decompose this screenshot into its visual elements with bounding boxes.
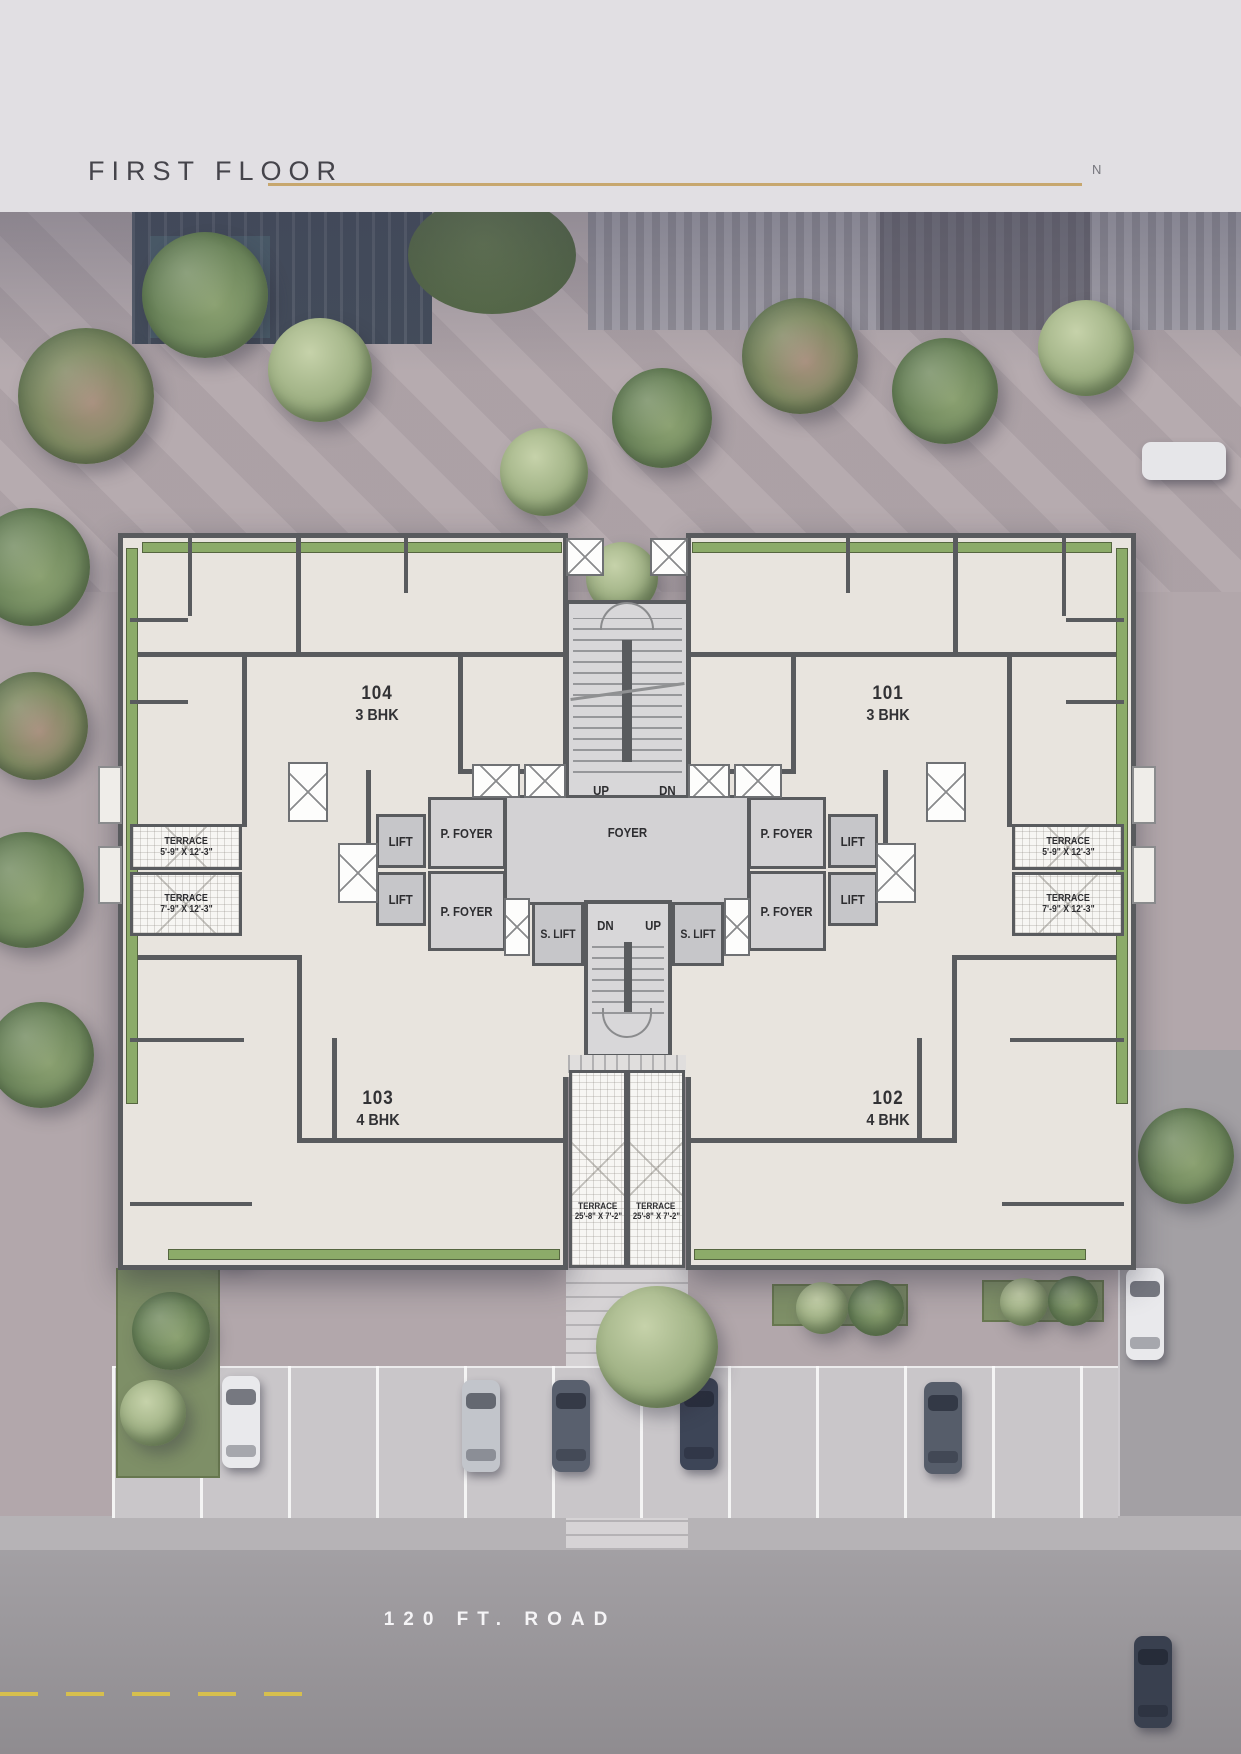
wall-segment	[952, 955, 1116, 960]
shaft-x-box	[504, 898, 530, 956]
wall-segment	[1010, 1038, 1124, 1042]
p-foyer-text: P. FOYER	[761, 826, 813, 841]
car	[1126, 1268, 1164, 1360]
tree	[0, 672, 88, 780]
green-edge-bottom-left	[168, 1249, 560, 1260]
green-edge-top-left	[142, 542, 562, 553]
wall-segment	[188, 538, 192, 616]
private-foyer-box: P. FOYER	[748, 797, 826, 869]
terrace-dims: 25'-8" X 7'-2"	[632, 1211, 679, 1221]
p-foyer-text: P. FOYER	[441, 826, 493, 841]
wall-segment	[130, 1202, 252, 1206]
road-name-text: 120 FT. ROAD	[384, 1609, 617, 1631]
wall-segment	[404, 538, 408, 593]
tree	[742, 298, 858, 414]
service-lift-box: S. LIFT	[672, 902, 724, 966]
wall-segment	[1002, 1202, 1124, 1206]
tree	[268, 318, 372, 422]
lift-box: LIFT	[828, 872, 878, 926]
balcony-slab	[98, 846, 122, 904]
shaft-x-box	[876, 843, 916, 903]
service-lift-box: S. LIFT	[532, 902, 584, 966]
terrace-name: TERRACE	[1046, 836, 1090, 847]
unit-number: 104	[323, 683, 431, 705]
wall-segment	[458, 657, 463, 769]
terrace-name: TERRACE	[578, 1201, 617, 1211]
shaft-x-box	[566, 538, 604, 576]
private-foyer-box: P. FOYER	[748, 871, 826, 951]
terrace-dims: 5'-9" X 12'-3"	[160, 847, 212, 858]
balcony-slab	[98, 766, 122, 824]
wall-segment	[130, 700, 188, 704]
shaft-x-box	[472, 764, 520, 798]
lift-box: LIFT	[376, 814, 426, 868]
wall-segment	[686, 1138, 954, 1143]
car	[1142, 442, 1226, 480]
balcony-slab	[1132, 766, 1156, 824]
title-rule	[268, 183, 1082, 186]
car	[1134, 1636, 1172, 1728]
lift-text: LIFT	[389, 892, 413, 907]
tree	[892, 338, 998, 444]
s-lift-text: S. LIFT	[540, 927, 575, 941]
wall-segment	[130, 618, 188, 622]
brochure-page: 120 FT. ROAD	[0, 0, 1241, 1754]
tree	[18, 328, 154, 464]
unit-type: 3 BHK	[323, 707, 431, 725]
terrace-dims: 7'-9" X 12'-3"	[160, 904, 212, 915]
shaft-x-box	[288, 762, 328, 822]
shrub	[120, 1380, 186, 1446]
lift-box: LIFT	[828, 814, 878, 868]
car	[222, 1376, 260, 1468]
shaft-x-box	[338, 843, 378, 903]
wall-segment	[791, 657, 796, 769]
unit-label-102: 102 4 BHK	[828, 1088, 948, 1130]
unit-number: 102	[834, 1088, 942, 1110]
private-foyer-box: P. FOYER	[428, 871, 506, 951]
terrace-dims: 25'-8" X 7'-2"	[574, 1211, 621, 1221]
unit-number: 103	[324, 1088, 432, 1110]
s-lift-text: S. LIFT	[680, 927, 715, 941]
terrace-name: TERRACE	[164, 893, 208, 904]
unit-type: 4 BHK	[324, 1112, 432, 1130]
terrace-right-lower: TERRACE 7'-9" X 12'-3"	[1012, 872, 1124, 936]
unit-label-103: 103 4 BHK	[318, 1088, 438, 1130]
terrace-left-lower: TERRACE 7'-9" X 12'-3"	[130, 872, 242, 936]
unit-label-104: 104 3 BHK	[317, 683, 437, 725]
car	[462, 1380, 500, 1472]
terrace-right-upper: TERRACE 5'-9" X 12'-3"	[1012, 824, 1124, 870]
wall-segment	[953, 538, 958, 656]
stair-label-dn: DN	[590, 918, 620, 933]
wall-segment	[296, 538, 301, 656]
terrace-name: TERRACE	[1046, 893, 1090, 904]
shaft-x-box	[650, 538, 688, 576]
foyer-text: FOYER	[607, 825, 646, 840]
private-foyer-box: P. FOYER	[428, 797, 506, 869]
wall-segment	[130, 1038, 244, 1042]
lift-text: LIFT	[841, 834, 865, 849]
wall-segment	[1066, 618, 1124, 622]
shrub	[796, 1282, 848, 1334]
dn-text: DN	[597, 918, 614, 933]
tree	[1038, 300, 1134, 396]
stair-divider	[622, 640, 632, 762]
unit-label-101: 101 3 BHK	[828, 683, 948, 725]
wall-segment	[1062, 538, 1066, 616]
wall-segment	[1007, 657, 1012, 827]
stair-label-up: UP	[638, 918, 668, 933]
shaft-x-box	[688, 764, 730, 798]
wall-segment	[300, 1138, 568, 1143]
wall-segment	[242, 657, 247, 827]
up-text: UP	[645, 918, 661, 933]
page-header: FIRST FLOOR N	[0, 0, 1241, 212]
wall-segment	[952, 955, 957, 1143]
terrace-bottom-left: TERRACE 25'-8" X 7'-2"	[569, 1070, 627, 1268]
terrace-dims: 7'-9" X 12'-3"	[1042, 904, 1094, 915]
tree	[1138, 1108, 1234, 1204]
green-edge-top-right	[692, 542, 1112, 553]
lift-text: LIFT	[841, 892, 865, 907]
p-foyer-text: P. FOYER	[441, 904, 493, 919]
terrace-bottom-right: TERRACE 25'-8" X 7'-2"	[627, 1070, 685, 1268]
shaft-x-box	[734, 764, 782, 798]
green-edge-bottom-right	[694, 1249, 1086, 1260]
foyer-area	[504, 795, 750, 905]
shaft-x-box	[926, 762, 966, 822]
wall-segment	[686, 652, 1116, 657]
road-marking-dashed	[0, 1692, 320, 1696]
shrub	[1048, 1276, 1098, 1326]
tree	[142, 232, 268, 358]
wall-segment	[1066, 700, 1124, 704]
shaft-x-box	[724, 898, 750, 956]
balcony-slab	[1132, 846, 1156, 904]
tree	[0, 832, 84, 948]
terrace-left-upper: TERRACE 5'-9" X 12'-3"	[130, 824, 242, 870]
unit-number: 101	[834, 683, 942, 705]
road	[0, 1550, 1241, 1754]
tree	[612, 368, 712, 468]
unit-type: 3 BHK	[834, 707, 942, 725]
tree	[500, 428, 588, 516]
stair-divider	[624, 942, 632, 1012]
shrub	[132, 1292, 210, 1370]
tree	[596, 1286, 718, 1408]
wall-segment	[138, 652, 568, 657]
shrub	[1000, 1278, 1048, 1326]
wall-segment	[846, 538, 850, 593]
terrace-name: TERRACE	[164, 836, 208, 847]
unit-type: 4 BHK	[834, 1112, 942, 1130]
tree	[0, 1002, 94, 1108]
foyer-label: FOYER	[504, 822, 750, 842]
terrace-dims: 5'-9" X 12'-3"	[1042, 847, 1094, 858]
lift-text: LIFT	[389, 834, 413, 849]
car	[924, 1382, 962, 1474]
north-indicator: N	[1092, 162, 1102, 177]
terrace-name: TERRACE	[636, 1201, 675, 1211]
road-name-label: 120 FT. ROAD	[350, 1606, 650, 1634]
car	[552, 1380, 590, 1472]
wall-segment	[297, 955, 302, 1143]
p-foyer-text: P. FOYER	[761, 904, 813, 919]
lift-box: LIFT	[376, 872, 426, 926]
shrub	[848, 1280, 904, 1336]
wall-segment	[138, 955, 302, 960]
shaft-x-box	[524, 764, 566, 798]
